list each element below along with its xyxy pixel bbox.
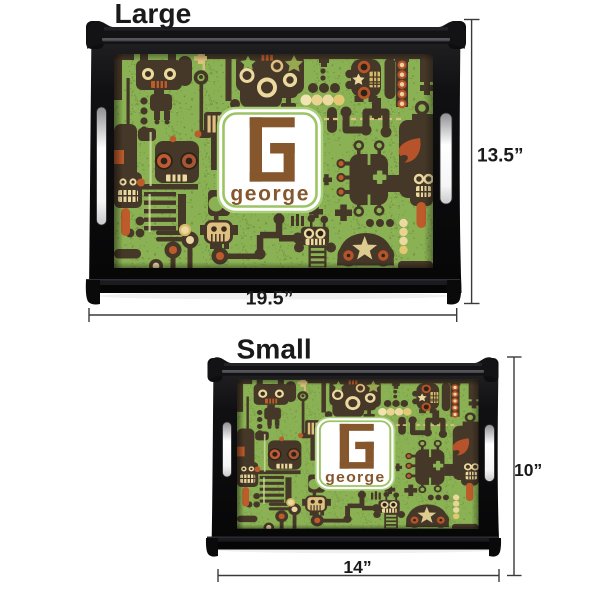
svg-text:Small: Small <box>237 332 312 364</box>
svg-text:19.5”: 19.5” <box>246 288 294 310</box>
svg-text:Large: Large <box>115 0 192 29</box>
svg-text:10”: 10” <box>514 460 542 480</box>
svg-text:13.5”: 13.5” <box>477 145 523 166</box>
svg-text:14”: 14” <box>343 557 371 577</box>
